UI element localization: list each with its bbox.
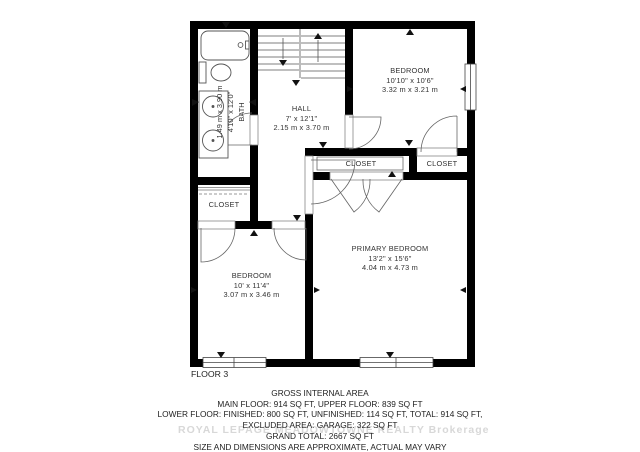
room-dims-m: 2.15 m x 3.70 m	[258, 123, 345, 133]
room-name: BATH	[236, 62, 247, 162]
room-name: BEDROOM	[353, 66, 467, 76]
area-summary-disclaimer: SIZE AND DIMENSIONS ARE APPROXIMATE, ACT…	[0, 442, 640, 452]
room-label-closet-right: CLOSET	[417, 159, 467, 169]
room-name: PRIMARY BEDROOM	[313, 244, 467, 254]
room-name: CLOSET	[417, 159, 467, 169]
room-label-hall: HALL 7' x 12'1" 2.15 m x 3.70 m	[258, 104, 345, 133]
room-dims-ft: 4'10" x 12'0"	[225, 62, 236, 162]
closet-mid-right-door-arc	[363, 179, 402, 212]
bedroom-left-entry-door-arc	[274, 228, 306, 260]
room-dims-m: 3.07 m x 3.46 m	[198, 290, 305, 300]
bedroom-top-door-arc	[349, 117, 381, 149]
floor-plan-drawing	[0, 0, 640, 452]
room-dims-ft: 10'10" x 10'6"	[353, 76, 467, 86]
bathtub-icon	[201, 31, 249, 60]
room-name: CLOSET	[313, 159, 409, 169]
area-summary-line3: EXCLUDED AREA: GARAGE: 322 SQ FT	[0, 420, 640, 431]
window-bedroom-left	[203, 358, 266, 368]
area-summary-line1: MAIN FLOOR: 914 SQ FT, UPPER FLOOR: 839 …	[0, 399, 640, 410]
room-name: HALL	[258, 104, 345, 114]
room-label-bedroom-top: BEDROOM 10'10" x 10'6" 3.32 m x 3.21 m	[353, 66, 467, 95]
stairs-icon	[258, 29, 345, 78]
room-dims-m: 3.32 m x 3.21 m	[353, 85, 467, 95]
room-label-closet-mid: CLOSET	[313, 159, 409, 169]
area-summary-line4: GRAND TOTAL: 2667 SQ FT	[0, 431, 640, 442]
room-dims-ft: 7' x 12'1"	[258, 114, 345, 124]
floor-label: FLOOR 3	[191, 369, 228, 379]
room-label-bedroom-left: BEDROOM 10' x 11'4" 3.07 m x 3.46 m	[198, 271, 305, 300]
room-dims-m: 4.04 m x 4.73 m	[313, 263, 467, 273]
room-dims-ft: 10' x 11'4"	[198, 281, 305, 291]
room-label-closet-left: CLOSET	[198, 200, 250, 210]
area-summary-title: GROSS INTERNAL AREA	[0, 388, 640, 399]
closet-right-door-arc	[421, 116, 457, 152]
bedroom-left-closet-door-arc	[201, 228, 235, 262]
room-dims-ft: 13'2" x 15'6"	[313, 254, 467, 264]
room-dims-m: 1.49 m x 3.90 m	[214, 62, 225, 162]
area-summary-line2: LOWER FLOOR: FINISHED: 800 SQ FT, UNFINI…	[0, 409, 640, 420]
floor-plan-page: 1.49 m x 3.90 m 4'10" x 12'0" BATH HALL …	[0, 0, 640, 452]
room-name: CLOSET	[198, 200, 250, 210]
area-summary: GROSS INTERNAL AREA MAIN FLOOR: 914 SQ F…	[0, 388, 640, 452]
room-label-bath: 1.49 m x 3.90 m 4'10" x 12'0" BATH	[214, 62, 248, 162]
closet-rod-shelf	[198, 188, 250, 195]
room-label-primary-bedroom: PRIMARY BEDROOM 13'2" x 15'6" 4.04 m x 4…	[313, 244, 467, 273]
window-primary-bedroom	[360, 358, 433, 368]
room-name: BEDROOM	[198, 271, 305, 281]
